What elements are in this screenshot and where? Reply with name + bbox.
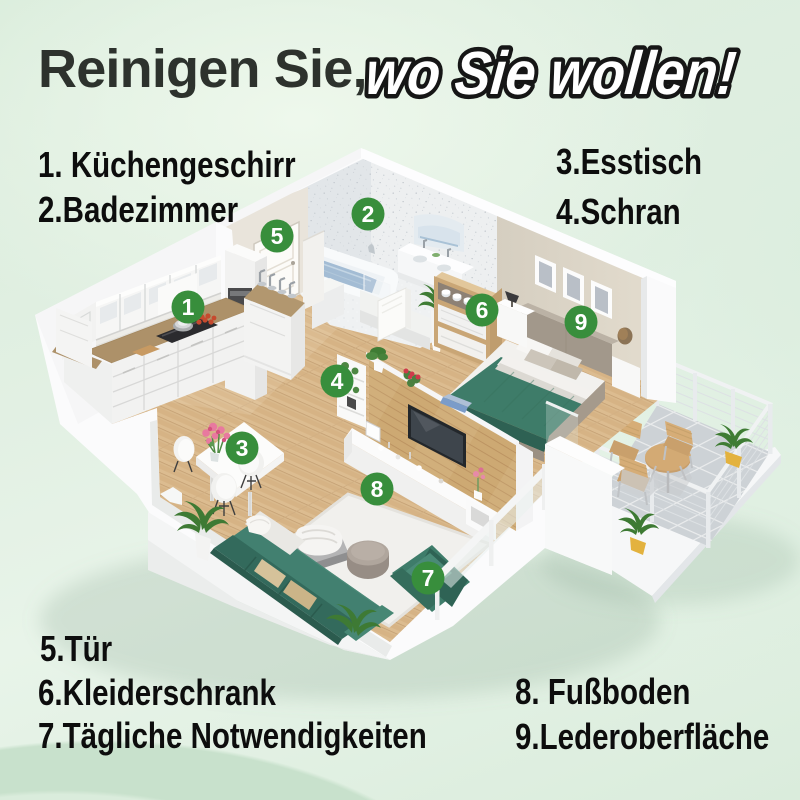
svg-text:wo Sie wollen!: wo Sie wollen! — [363, 40, 739, 108]
svg-text:5: 5 — [271, 223, 284, 249]
svg-text:7: 7 — [422, 565, 435, 591]
svg-text:2: 2 — [362, 201, 375, 227]
svg-text:3: 3 — [236, 435, 249, 461]
svg-text:9: 9 — [575, 309, 588, 335]
svg-text:1: 1 — [182, 294, 195, 320]
svg-text:6: 6 — [476, 297, 489, 323]
svg-text:8: 8 — [371, 476, 384, 502]
svg-text:4: 4 — [331, 368, 344, 394]
